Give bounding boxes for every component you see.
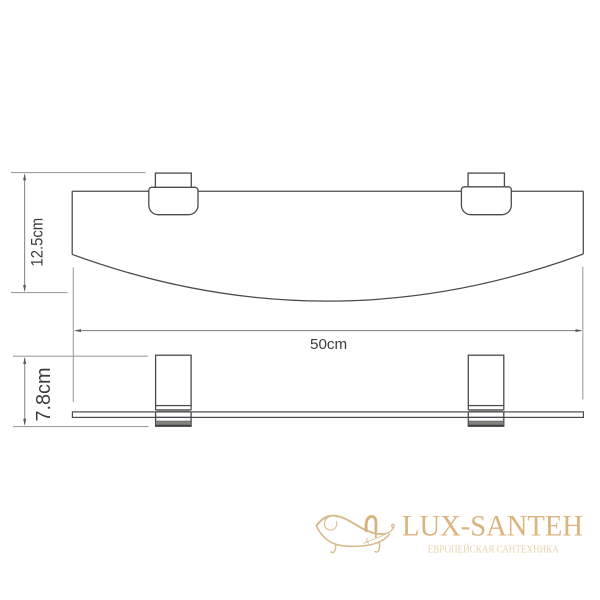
svg-text:7.8cm: 7.8cm [32, 368, 55, 422]
svg-text:12.5cm: 12.5cm [29, 218, 47, 267]
svg-text:50cm: 50cm [310, 336, 347, 353]
svg-text:ЕВРОПЕЙСКАЯ САНТЕХНИКА: ЕВРОПЕЙСКАЯ САНТЕХНИКА [428, 544, 559, 556]
svg-text:LUX-SANTEH: LUX-SANTEH [402, 510, 583, 543]
